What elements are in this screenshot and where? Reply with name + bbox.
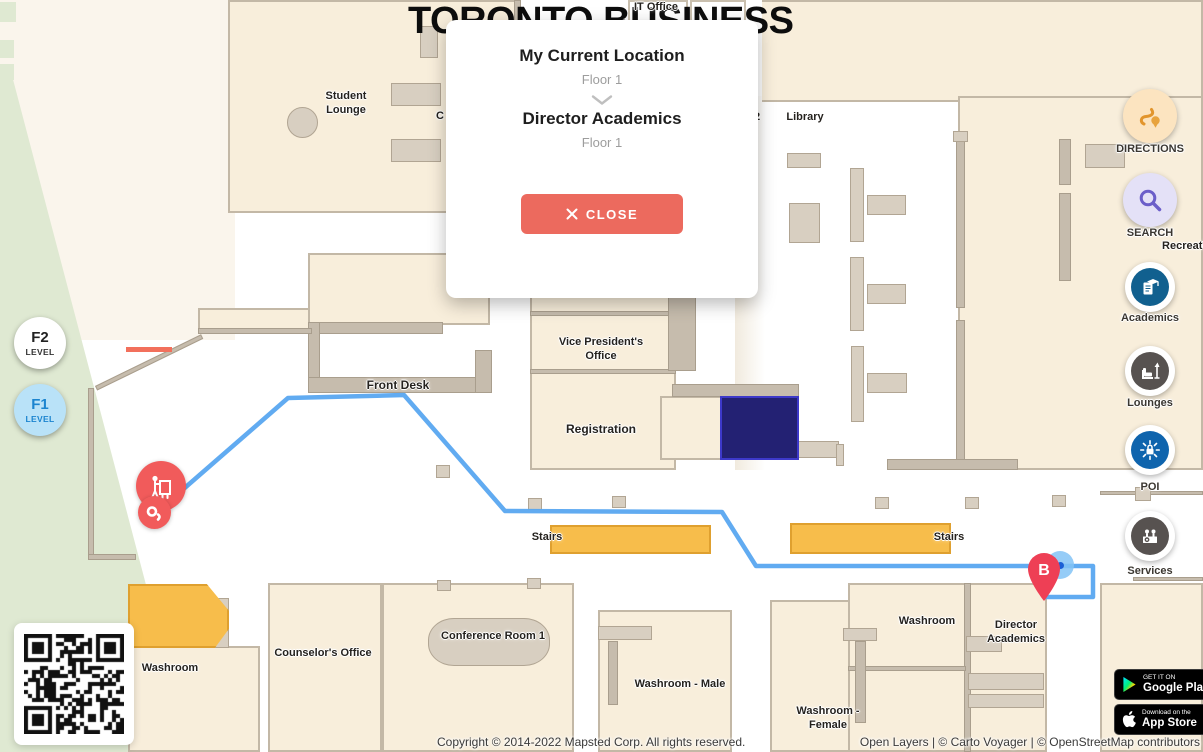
wall-segment bbox=[530, 311, 676, 316]
wall-segment bbox=[956, 140, 965, 308]
pillar bbox=[875, 497, 889, 509]
highlighted-room[interactable] bbox=[720, 396, 799, 460]
exit-door-marker bbox=[126, 347, 172, 352]
magnifier-icon bbox=[1137, 187, 1164, 214]
google-play-tagline: GET IT ON bbox=[1143, 674, 1203, 682]
copyright-text: Copyright © 2014-2022 Mapsted Corp. All … bbox=[437, 735, 745, 749]
apple-icon bbox=[1122, 711, 1136, 728]
services-circle bbox=[1131, 517, 1169, 555]
level-f1-sub: LEVEL bbox=[26, 414, 55, 424]
search-button[interactable] bbox=[1123, 173, 1177, 227]
pillar bbox=[1052, 495, 1066, 507]
room-label: Library bbox=[775, 111, 835, 125]
room-counselors-office[interactable] bbox=[268, 583, 382, 752]
room-label: Conference Room 1 bbox=[432, 630, 554, 644]
google-play-store-name: Google Play bbox=[1143, 682, 1203, 695]
bookshelf bbox=[867, 195, 906, 215]
green-patch bbox=[0, 64, 14, 80]
directions-label: DIRECTIONS bbox=[1095, 143, 1203, 155]
bookshelf bbox=[850, 168, 864, 242]
bookshelf bbox=[787, 153, 821, 168]
route-summary-popup: My Current Location Floor 1 Director Aca… bbox=[446, 20, 758, 298]
destination-pin-label: B bbox=[1038, 562, 1050, 579]
lounges-circle bbox=[1131, 352, 1169, 390]
door-post bbox=[437, 580, 451, 591]
furniture bbox=[843, 628, 877, 641]
stairs-washroom-area[interactable] bbox=[128, 584, 229, 648]
poi-button[interactable] bbox=[1125, 425, 1175, 475]
bookshelf bbox=[867, 373, 907, 393]
wall-segment bbox=[887, 459, 1018, 470]
room-label: Student Lounge bbox=[306, 90, 386, 118]
room-label: Vice President's Office bbox=[551, 336, 651, 364]
academics-button[interactable] bbox=[1125, 262, 1175, 312]
route-to-floor: Floor 1 bbox=[582, 135, 622, 150]
services-icon bbox=[1139, 525, 1161, 547]
lounge-icon bbox=[1139, 360, 1161, 382]
level-f2-label: F2 bbox=[31, 330, 49, 345]
room-conference[interactable] bbox=[382, 583, 574, 752]
wall-segment bbox=[95, 334, 203, 390]
poi-circle bbox=[1131, 431, 1169, 469]
google-play-badge[interactable]: GET IT ON Google Play bbox=[1114, 669, 1203, 700]
furniture bbox=[968, 673, 1044, 690]
poi-label: POI bbox=[1095, 481, 1203, 493]
furniture bbox=[391, 83, 441, 106]
close-button-label: CLOSE bbox=[586, 207, 638, 222]
pillar bbox=[965, 497, 979, 509]
bench bbox=[797, 441, 839, 458]
room-label: IT Office bbox=[616, 1, 696, 15]
app-store-store-name: App Store bbox=[1142, 717, 1197, 730]
app-store-tagline: Download on the bbox=[1142, 709, 1197, 717]
bookshelf bbox=[850, 257, 864, 331]
search-label: SEARCH bbox=[1095, 227, 1203, 239]
services-label: Services bbox=[1095, 565, 1203, 577]
wall-segment bbox=[608, 641, 618, 705]
wall-segment bbox=[956, 320, 965, 470]
room-label: Counselor's Office bbox=[273, 647, 373, 661]
app-store-badge[interactable]: Download on the App Store bbox=[1114, 704, 1203, 735]
route-from-title: My Current Location bbox=[519, 46, 684, 66]
google-play-icon bbox=[1122, 676, 1137, 693]
front-desk-counter bbox=[308, 322, 443, 334]
lounges-label: Lounges bbox=[1095, 397, 1203, 409]
room-label: Recreation Area bbox=[1160, 240, 1203, 254]
directions-button[interactable] bbox=[1123, 89, 1177, 143]
qr-code bbox=[24, 634, 124, 734]
key-icon bbox=[145, 503, 164, 522]
furniture bbox=[598, 626, 652, 640]
pillar bbox=[528, 498, 542, 510]
furniture bbox=[968, 694, 1044, 708]
wall-segment bbox=[88, 388, 94, 560]
room-label: Washroom - Female bbox=[777, 705, 879, 733]
furniture bbox=[391, 139, 441, 162]
room-label: Stairs bbox=[914, 531, 984, 545]
room-label: Washroom - Male bbox=[629, 678, 731, 692]
wall-segment bbox=[198, 328, 312, 334]
wall-segment bbox=[1059, 139, 1071, 185]
room-label: Stairs bbox=[512, 531, 582, 545]
bookshelf bbox=[851, 346, 864, 422]
services-button[interactable] bbox=[1125, 511, 1175, 561]
route-from-floor: Floor 1 bbox=[582, 72, 622, 87]
room-label: Washroom bbox=[887, 615, 967, 629]
academics-label: Academics bbox=[1095, 312, 1203, 324]
level-f1-label: F1 bbox=[31, 397, 49, 412]
close-x-icon bbox=[566, 208, 578, 220]
map-credits-links[interactable]: Open Layers | © Carto Voyager | © OpenSt… bbox=[860, 735, 1200, 749]
pillar bbox=[436, 465, 450, 478]
room-top-right[interactable] bbox=[758, 0, 1203, 102]
route-to-title: Director Academics bbox=[522, 109, 681, 129]
room-label: Registration bbox=[551, 422, 651, 437]
academics-icon bbox=[1139, 276, 1161, 298]
bookshelf bbox=[867, 284, 906, 304]
room-near-highlight[interactable] bbox=[660, 396, 722, 460]
wall-segment bbox=[1059, 193, 1071, 281]
bookshelf bbox=[789, 203, 820, 243]
route-icon bbox=[1137, 103, 1164, 130]
indoor-map[interactable]: TORONTO BUSINESS Student Lounge IT Offic… bbox=[0, 0, 1203, 752]
close-button[interactable]: CLOSE bbox=[521, 194, 683, 234]
lounges-button[interactable] bbox=[1125, 346, 1175, 396]
level-button-f1[interactable]: F1 LEVEL bbox=[14, 384, 66, 436]
wall-segment bbox=[1133, 577, 1203, 581]
academics-circle bbox=[1131, 268, 1169, 306]
chevron-down-icon bbox=[591, 94, 613, 106]
wall-segment bbox=[530, 369, 676, 374]
wall-segment bbox=[88, 554, 136, 560]
room-label: Director Academics bbox=[966, 619, 1066, 647]
destination-pin[interactable]: B bbox=[1022, 551, 1066, 608]
front-desk-counter bbox=[475, 350, 492, 393]
poi-marker[interactable] bbox=[138, 496, 171, 529]
pillar bbox=[953, 131, 968, 142]
green-patch bbox=[0, 2, 16, 22]
door-post bbox=[527, 578, 541, 589]
qr-code-card bbox=[14, 623, 134, 745]
green-patch bbox=[0, 40, 14, 58]
bench bbox=[836, 444, 844, 466]
pillar bbox=[612, 496, 626, 508]
level-f2-sub: LEVEL bbox=[26, 347, 55, 357]
room-label: Front Desk bbox=[358, 378, 438, 393]
level-button-f2[interactable]: F2 LEVEL bbox=[14, 317, 66, 369]
room-label: Washroom bbox=[130, 662, 210, 676]
poi-icon bbox=[1139, 439, 1161, 461]
